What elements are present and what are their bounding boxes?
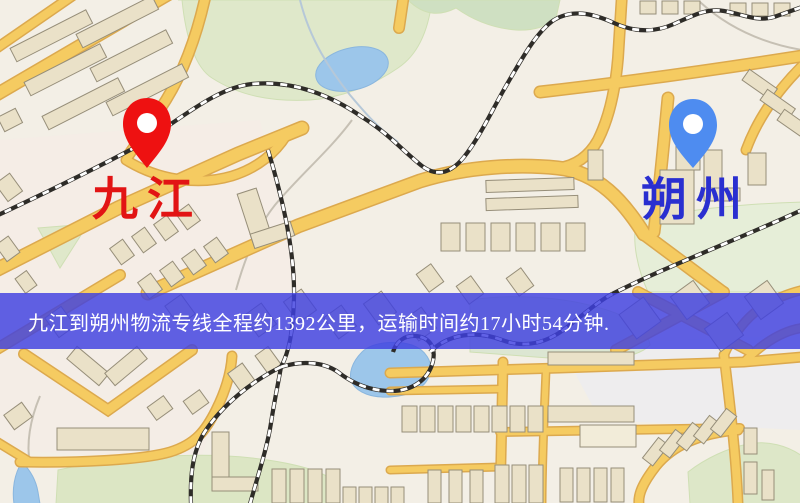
route-banner: 九江到朔州物流专线全程约1392公里，运输时间约17小时54分钟.: [0, 293, 800, 349]
logistics-map-image: 九江 朔州 九江到朔州物流专线全程约1392公里，运输时间约17小时54分钟.: [0, 0, 800, 503]
destination-city-label: 朔州: [641, 177, 751, 223]
origin-city-label: 九江: [92, 177, 202, 223]
origin-pin-hole: [137, 113, 157, 133]
markers-layer: [0, 0, 800, 503]
route-banner-text: 九江到朔州物流专线全程约1392公里，运输时间约17小时54分钟.: [0, 307, 610, 336]
destination-pin-hole: [683, 114, 703, 134]
